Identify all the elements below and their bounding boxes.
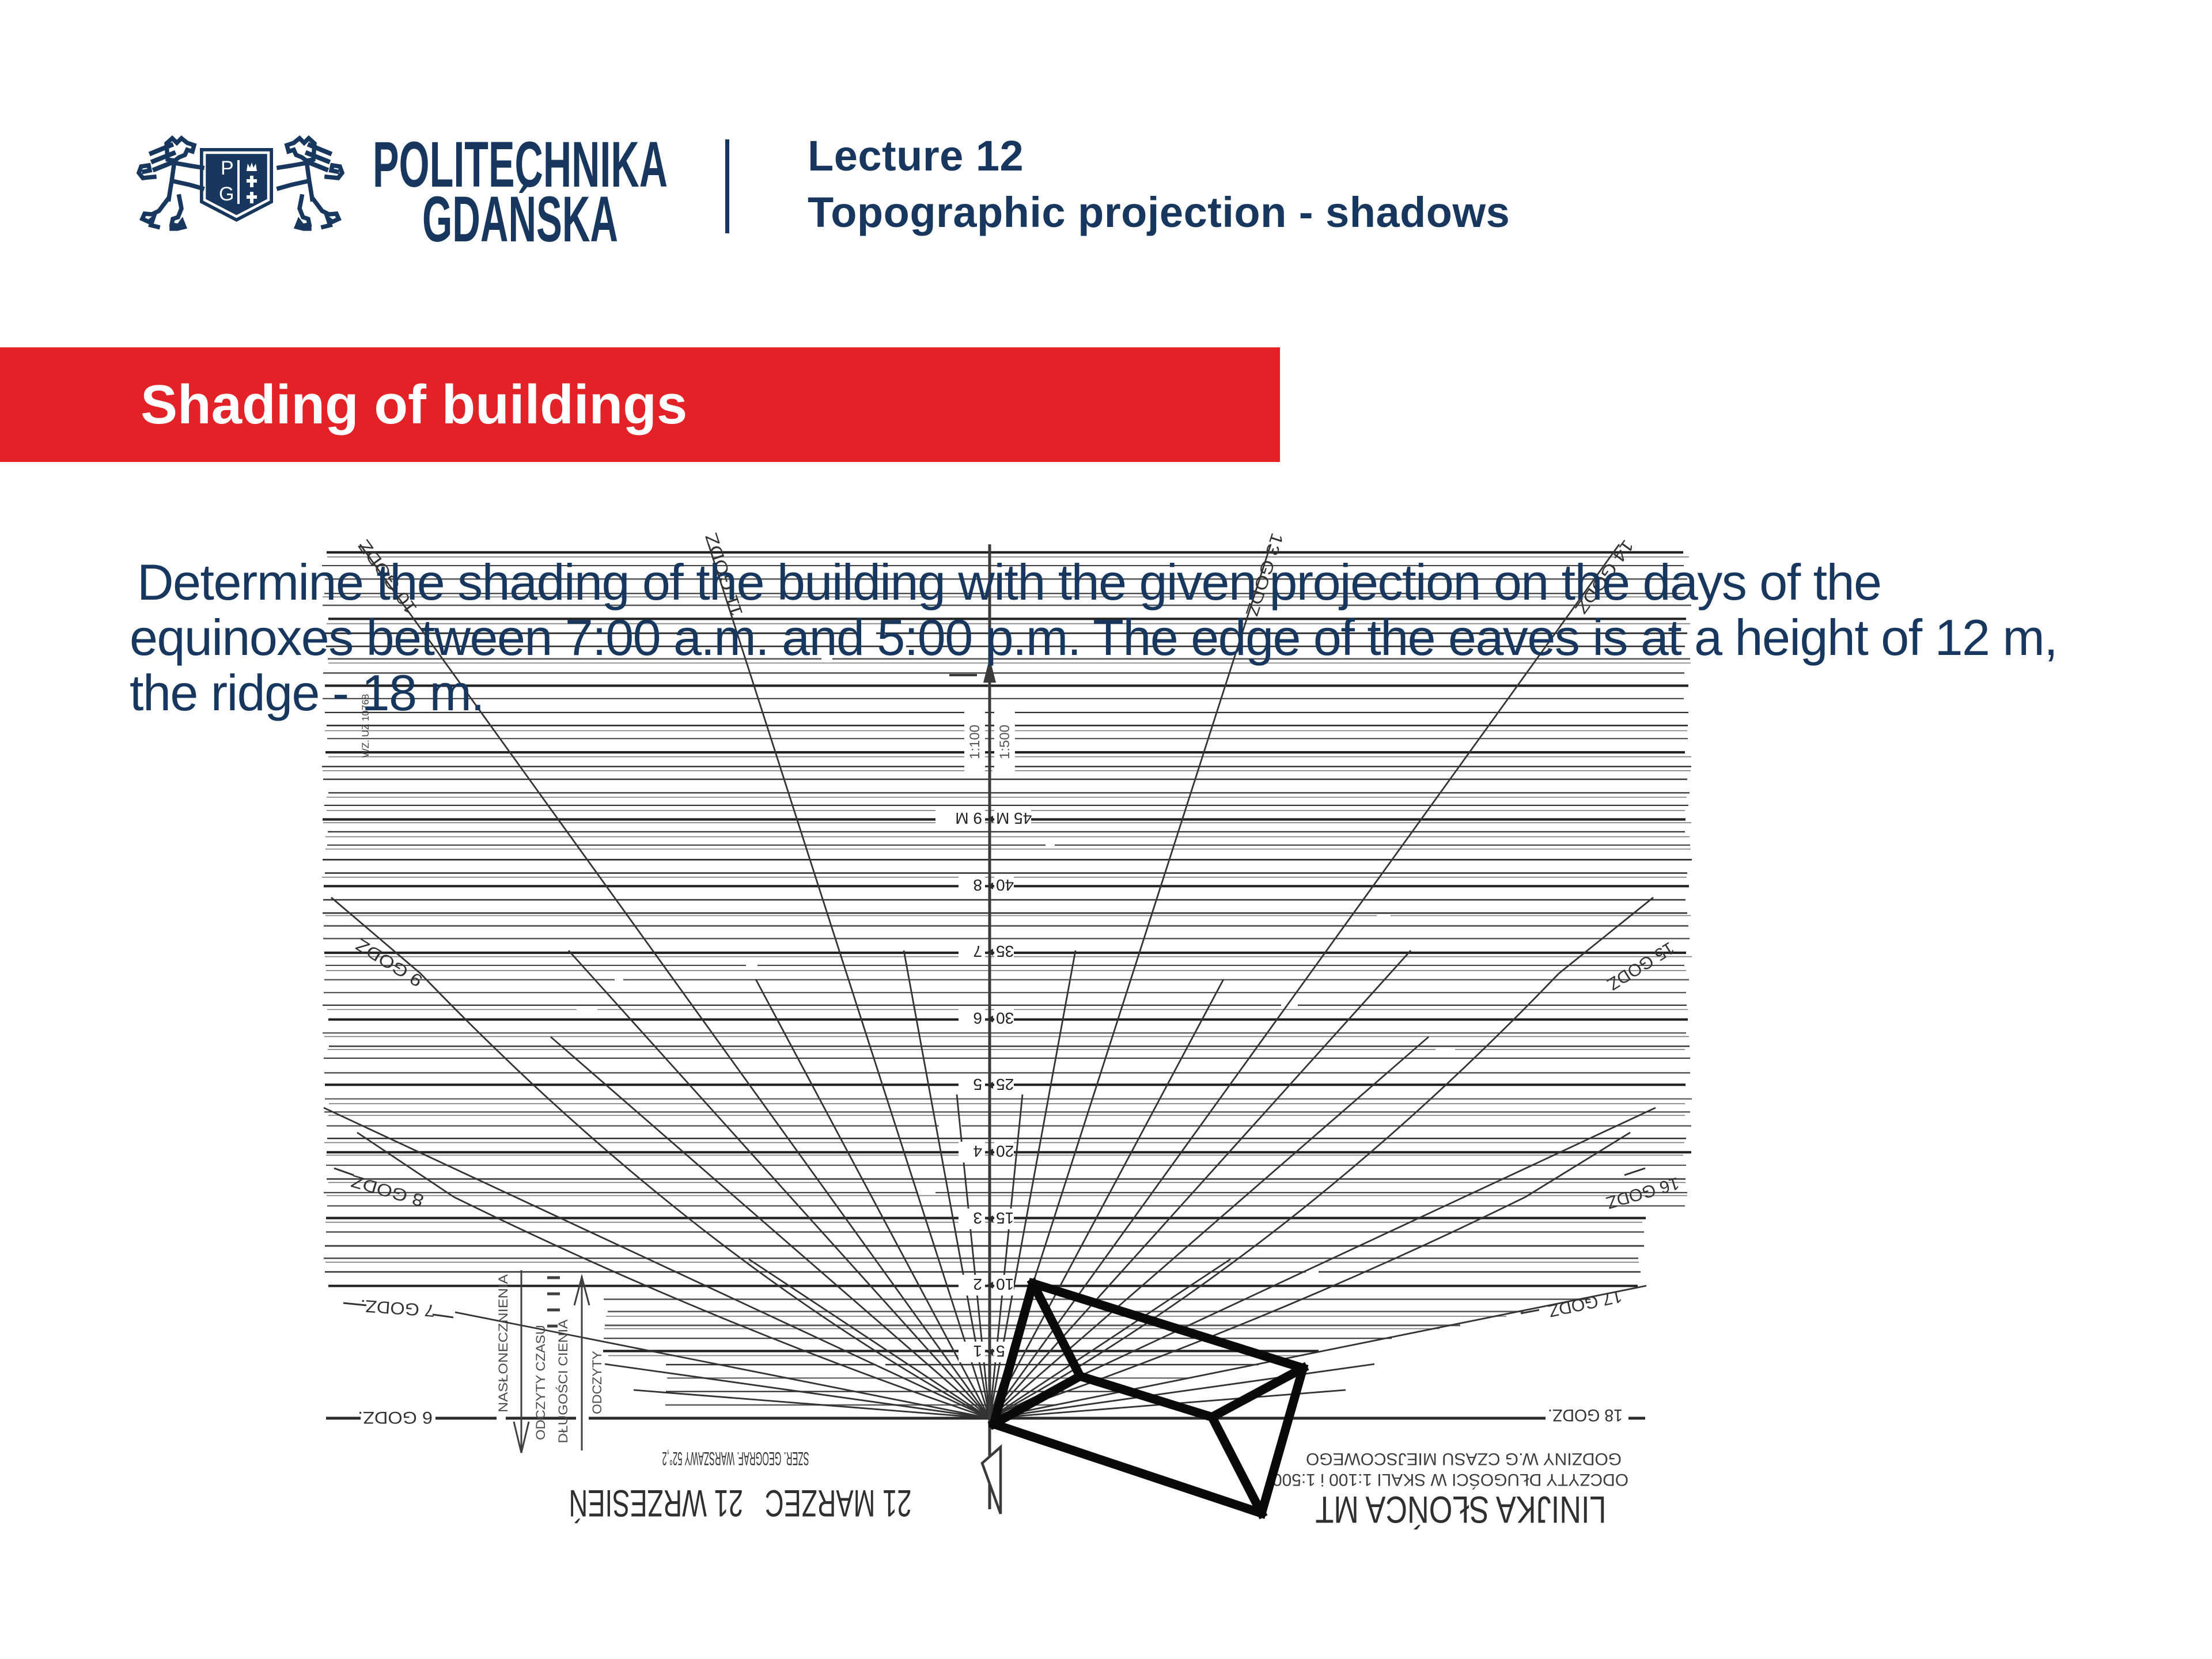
svg-text:6 GODZ.: 6 GODZ. [358,1408,433,1427]
svg-text:35: 35 [996,942,1014,960]
svg-text:DŁUGOŚCI CIENIA: DŁUGOŚCI CIENIA [556,1319,570,1443]
svg-text:7 GODZ.: 7 GODZ. [359,1296,435,1320]
svg-text:GODZINY W.G CZASU MIEJSCOWEGO: GODZINY W.G CZASU MIEJSCOWEGO [1306,1449,1622,1468]
svg-text:9 GODZ: 9 GODZ [353,934,426,990]
svg-text:17 GODZ: 17 GODZ [1547,1286,1624,1320]
svg-text:GDAŃSKA: GDAŃSKA [422,183,618,255]
svg-text:1: 1 [973,1342,982,1360]
svg-text:G: G [219,183,234,205]
svg-text:SZER. GEOGRAF. WARSZAWY 52°,2: SZER. GEOGRAF. WARSZAWY 52°,2 [662,1448,809,1469]
svg-text:P: P [221,157,234,179]
svg-text:20: 20 [996,1142,1014,1160]
svg-text:15: 15 [996,1209,1014,1227]
svg-text:25: 25 [996,1075,1014,1093]
svg-text:1:100: 1:100 [967,725,983,759]
svg-text:4: 4 [973,1142,982,1160]
svg-text:ODCZYTY: ODCZYTY [590,1351,604,1414]
svg-text:30: 30 [996,1009,1014,1027]
svg-text:7: 7 [973,942,982,960]
svg-text:1:500: 1:500 [997,725,1013,759]
svg-text:5: 5 [996,1342,1005,1360]
svg-text:8: 8 [973,876,982,894]
svg-text:8 GODZ: 8 GODZ [349,1171,426,1210]
svg-text:ODCZYTY DŁUGOŚCI W SKALI 1:100: ODCZYTY DŁUGOŚCI W SKALI 1:100 i 1:500 [1272,1470,1628,1490]
svg-text:LINIJKA SŁOŃCA MT: LINIJKA SŁOŃCA MT [1316,1488,1607,1531]
svg-text:21 MARZEC 21 WRZESIEŃ: 21 MARZEC 21 WRZESIEŃ [569,1482,912,1525]
svg-text:5: 5 [973,1075,982,1093]
svg-text:3: 3 [973,1209,982,1227]
svg-text:6: 6 [973,1009,982,1027]
svg-text:40: 40 [996,876,1014,894]
svg-text:9 M: 9 M [955,809,982,827]
svg-text:2: 2 [973,1275,982,1293]
svg-text:45 M: 45 M [996,809,1032,827]
svg-text:18 GODZ.: 18 GODZ. [1548,1406,1623,1425]
svg-text:NASŁONECZNIENIA: NASŁONECZNIENIA [496,1274,510,1412]
svg-text:10: 10 [996,1275,1014,1293]
svg-text:ODCZYTY CZASU: ODCZYTY CZASU [533,1325,548,1440]
